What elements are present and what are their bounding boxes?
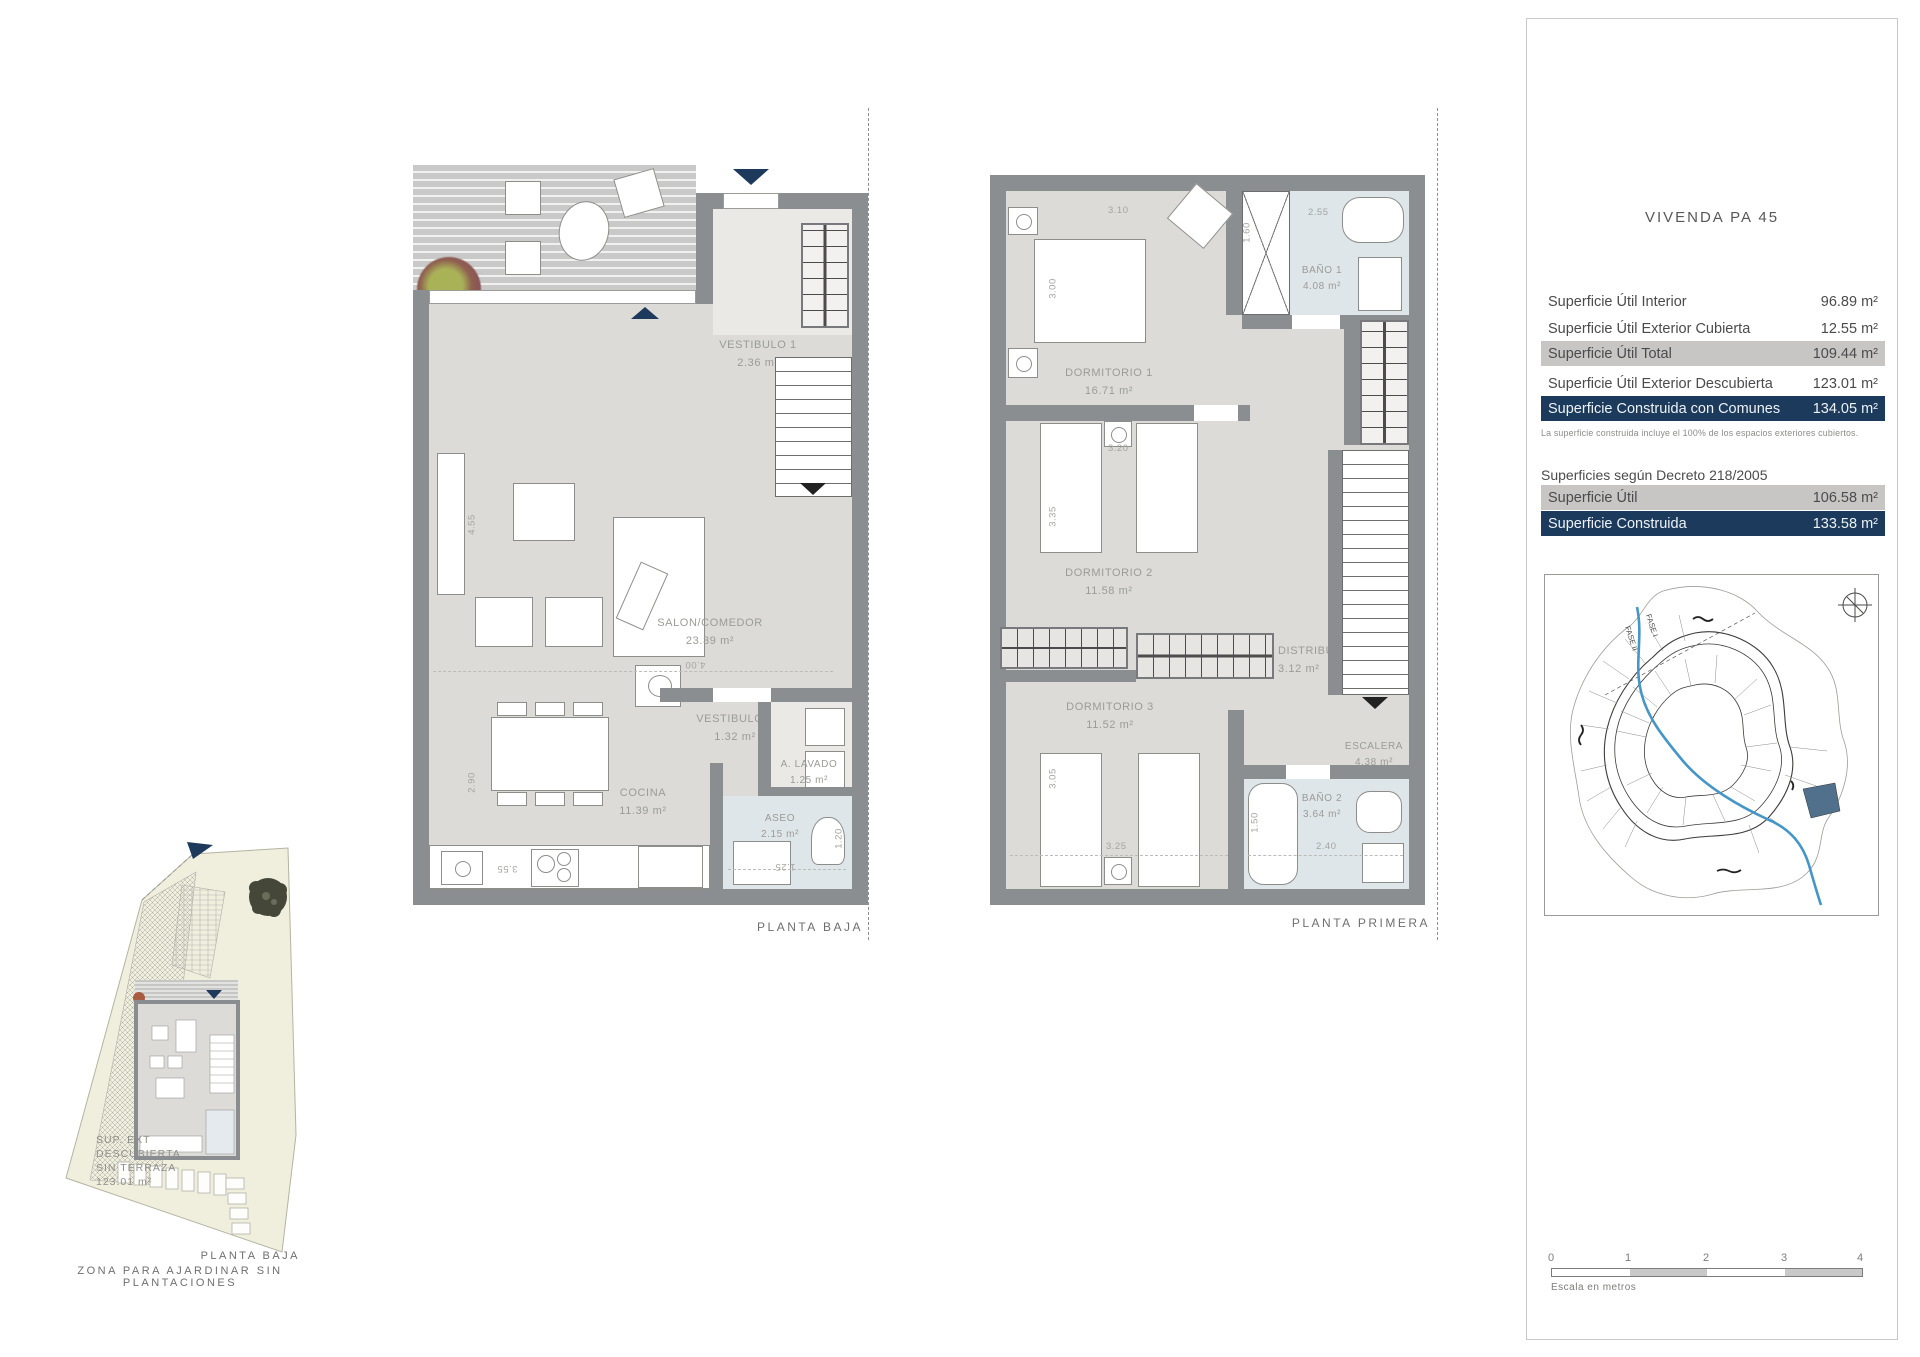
- dim-3-55: 3.55: [497, 863, 518, 874]
- map-inner-loop: [1644, 684, 1747, 798]
- wall: [696, 193, 868, 209]
- wall: [413, 889, 868, 905]
- scale-segments: [1551, 1268, 1863, 1277]
- svg-text:SUP. EXT: SUP. EXT: [96, 1134, 151, 1146]
- surface-note: La superficie construida incluye el 100%…: [1541, 428, 1885, 438]
- corridor-wardrobe: [1000, 627, 1128, 669]
- decree-row-construida: Superficie Construida133.58 m²: [1541, 511, 1885, 536]
- dim-2-40: 2.40: [1316, 841, 1337, 852]
- door-gap: [1286, 765, 1330, 779]
- room-label-bano2: BAÑO 23.64 m²: [1272, 791, 1372, 823]
- dim-3-20: 3.20: [1108, 443, 1129, 454]
- scale-tick: 3: [1781, 1252, 1787, 1264]
- wall: [852, 193, 868, 905]
- lamp: [1016, 356, 1032, 372]
- plan-separator: [868, 108, 869, 940]
- sliding-door-arrow-icon: [631, 307, 659, 319]
- coffee-table: [513, 483, 575, 541]
- map-highlight-plot: [1803, 783, 1840, 818]
- map-outer-boundary: [1570, 587, 1847, 898]
- dim-1-25: 1.25: [775, 861, 796, 872]
- door-gap: [1292, 315, 1340, 329]
- wall: [1344, 320, 1360, 445]
- dim-3-05: 3.05: [1048, 764, 1059, 794]
- vestibule-closet: [801, 223, 849, 328]
- hob-burner: [557, 852, 571, 866]
- svg-text:SIN TERRAZA: SIN TERRAZA: [96, 1162, 176, 1174]
- scale-label: Escala en metros: [1551, 1282, 1636, 1293]
- dim-line: [433, 671, 833, 672]
- surface-row: Superficie Útil Interior96.89 m²: [1541, 289, 1885, 314]
- ground-floor-plan: PORCHE12.55 m² VESTIBULO 12.36 m²: [413, 165, 868, 910]
- bathtub: [1342, 197, 1404, 243]
- svg-text:DESCUBIERTA: DESCUBIERTA: [96, 1148, 181, 1160]
- map-fase2-label: FASE II: [1623, 625, 1639, 652]
- hob-burner: [537, 855, 555, 873]
- dining-chair: [535, 792, 565, 806]
- room-label-dormitorio1: DORMITORIO 116.71 m²: [1039, 365, 1179, 400]
- dim-4-00: 4.00: [685, 659, 706, 670]
- entrance-arrow-icon: [733, 169, 769, 185]
- sink-basin: [455, 861, 471, 877]
- room-label-aseo: ASEO2.15 m²: [735, 811, 825, 843]
- room-label-cocina: COCINA11.39 m²: [578, 785, 708, 820]
- room-label-dormitorio3: DORMITORIO 311.52 m²: [1040, 699, 1180, 734]
- shower: [1242, 191, 1290, 315]
- single-bed: [1138, 753, 1200, 887]
- dim-4-55: 4.55: [467, 510, 478, 540]
- sideboard: [437, 453, 465, 595]
- dim-line: [1010, 855, 1228, 856]
- dim-3-10: 3.10: [1108, 205, 1129, 216]
- corridor-wardrobe: [1136, 633, 1274, 679]
- single-bed: [1136, 423, 1198, 553]
- door-gap: [1194, 405, 1238, 421]
- dim-2-90: 2.90: [467, 768, 478, 798]
- entry-door-gap: [723, 193, 779, 209]
- wall: [696, 193, 713, 304]
- toilet: [1362, 843, 1404, 883]
- dining-chair: [497, 702, 527, 716]
- compass-icon: [1838, 588, 1872, 622]
- wardrobe: [1360, 320, 1409, 445]
- dim-1-20: 1.20: [834, 824, 845, 854]
- wall: [1409, 175, 1425, 905]
- scale-tick: 1: [1625, 1252, 1631, 1264]
- hob-burner: [557, 868, 571, 882]
- dining-chair: [535, 702, 565, 716]
- dim-3-25: 3.25: [1106, 841, 1127, 852]
- dim-3-35: 3.35: [1048, 502, 1059, 532]
- room-label-dormitorio2: DORMITORIO 211.58 m²: [1039, 565, 1179, 600]
- scale-tick: 2: [1703, 1252, 1709, 1264]
- dim-3-00: 3.00: [1048, 274, 1059, 304]
- porch-chair: [505, 181, 541, 215]
- unit-title: VIVENDA PA 45: [1527, 209, 1897, 226]
- scale-tick: 0: [1548, 1252, 1554, 1264]
- dim-line: [1248, 855, 1403, 856]
- decree-heading: Superficies según Decreto 218/2005: [1541, 467, 1767, 483]
- dim-2-55: 2.55: [1308, 207, 1329, 218]
- armchair: [545, 597, 603, 647]
- staircase: [775, 357, 852, 497]
- stair-direction-arrow-icon: [1362, 697, 1388, 709]
- surface-row-constructed: Superficie Construida con Comunes134.05 …: [1541, 396, 1885, 421]
- staircase: [1342, 450, 1409, 695]
- info-card: VIVENDA PA 45 Superficie Útil Interior96…: [1526, 18, 1898, 1340]
- wall: [1006, 670, 1136, 682]
- porch-chair: [505, 241, 541, 275]
- room-label-lavado: A. LAVADO1.25 m²: [761, 757, 857, 789]
- first-floor-plan: BAÑO 14.08 m² 2.55 1.60 DORMITORIO 116.7…: [990, 165, 1425, 910]
- dining-chair: [497, 792, 527, 806]
- dining-table: [491, 717, 609, 791]
- armchair: [475, 597, 533, 647]
- surface-row: Superficie Útil Exterior Cubierta12.55 m…: [1541, 316, 1885, 341]
- wall: [990, 889, 1425, 905]
- surface-row: Superficie Útil Exterior Descubierta123.…: [1541, 371, 1885, 396]
- stair-direction-arrow-icon: [800, 483, 826, 495]
- room-label-salon: SALON/COMEDOR23.39 m²: [640, 615, 780, 650]
- door-gap: [713, 688, 771, 702]
- map-road-outer: [1604, 632, 1792, 841]
- washer: [805, 708, 845, 746]
- wall: [710, 763, 723, 889]
- scale-tick: 4: [1857, 1252, 1863, 1264]
- site-caption-1: PLANTA BAJA: [120, 1250, 300, 1262]
- room-label-bano1: BAÑO 14.08 m²: [1267, 263, 1377, 295]
- lamp: [1016, 214, 1032, 230]
- gf-caption: PLANTA BAJA: [688, 920, 863, 934]
- window-band: [429, 290, 696, 304]
- map-fase1-label: FASE I: [1644, 613, 1660, 638]
- mini-porch-deck: [135, 980, 238, 1002]
- wall: [1228, 710, 1244, 890]
- floorplan-sheet: PORCHE12.55 m² VESTIBULO 12.36 m²: [0, 0, 1920, 1357]
- single-bed: [1040, 423, 1102, 553]
- surface-row-total: Superficie Útil Total109.44 m²: [1541, 341, 1885, 366]
- map-stream: [1637, 607, 1821, 905]
- kitchen-appliance: [638, 846, 703, 888]
- decree-row-util: Superficie Útil106.58 m²: [1541, 485, 1885, 510]
- dining-chair: [573, 702, 603, 716]
- svg-text:123.01 m²: 123.01 m²: [96, 1176, 152, 1188]
- location-map: FASE I FASE II: [1544, 574, 1879, 916]
- plan-separator: [1437, 108, 1438, 940]
- lamp: [1111, 427, 1127, 443]
- site-plan: SUP. EXT DESCUBIERTA SIN TERRAZA 123.01 …: [60, 840, 300, 1300]
- dim-1-60: 1.60: [1242, 218, 1253, 248]
- dim-1-50: 1.50: [1250, 808, 1261, 838]
- lamp: [1111, 864, 1127, 880]
- wall: [990, 175, 1006, 905]
- ff-caption: PLANTA PRIMERA: [1255, 916, 1430, 930]
- site-caption-2: ZONA PARA AJARDINAR SIN PLANTACIONES: [40, 1265, 320, 1289]
- wall: [990, 175, 1425, 191]
